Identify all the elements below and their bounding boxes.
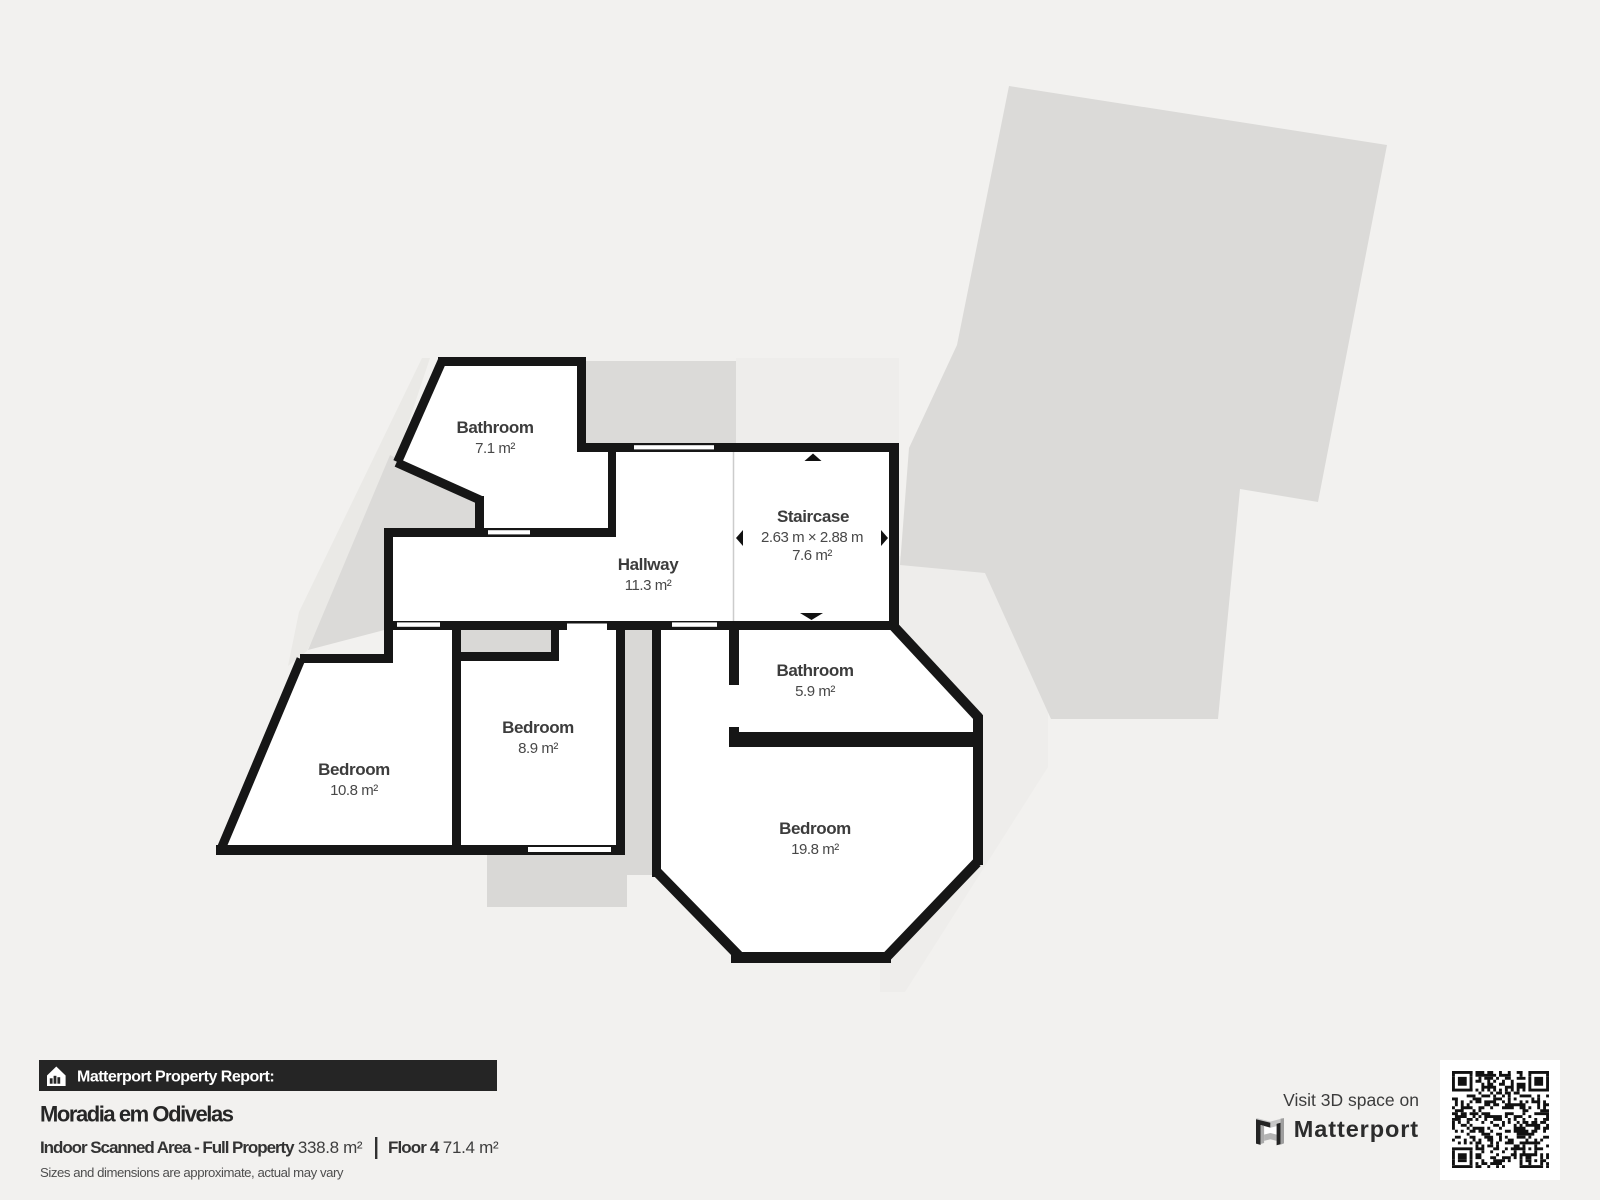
svg-text:7.1 m²: 7.1 m²: [475, 440, 515, 457]
svg-text:Moradia em Odivelas: Moradia em Odivelas: [40, 1102, 234, 1127]
svg-text:8.9 m²: 8.9 m²: [518, 740, 558, 757]
svg-text:Matterport Property Report:: Matterport Property Report:: [77, 1069, 274, 1086]
svg-text:11.3 m²: 11.3 m²: [625, 577, 672, 594]
svg-text:Visit 3D space on: Visit 3D space on: [1283, 1090, 1419, 1110]
svg-text:Bathroom: Bathroom: [456, 418, 533, 437]
svg-text:Staircase: Staircase: [777, 507, 849, 526]
svg-text:Hallway: Hallway: [618, 555, 679, 574]
svg-text:Bathroom: Bathroom: [776, 661, 853, 680]
svg-text:Bedroom: Bedroom: [502, 718, 574, 737]
svg-text:10.8 m²: 10.8 m²: [330, 782, 378, 799]
svg-text:Sizes and dimensions are appro: Sizes and dimensions are approximate, ac…: [40, 1165, 344, 1180]
svg-text:19.8 m²: 19.8 m²: [791, 841, 839, 858]
svg-text:Bedroom: Bedroom: [779, 819, 851, 838]
svg-text:7.6 m²: 7.6 m²: [792, 547, 832, 564]
svg-text:2.63 m × 2.88 m: 2.63 m × 2.88 m: [761, 529, 863, 546]
svg-text:5.9 m²: 5.9 m²: [795, 683, 835, 700]
svg-text:Floor 4 71.4 m²: Floor 4 71.4 m²: [388, 1138, 499, 1157]
svg-text:Bedroom: Bedroom: [318, 760, 390, 779]
svg-text:Matterport: Matterport: [1294, 1116, 1419, 1142]
svg-text:Indoor Scanned Area - Full Pro: Indoor Scanned Area - Full Property 338.…: [40, 1138, 363, 1157]
